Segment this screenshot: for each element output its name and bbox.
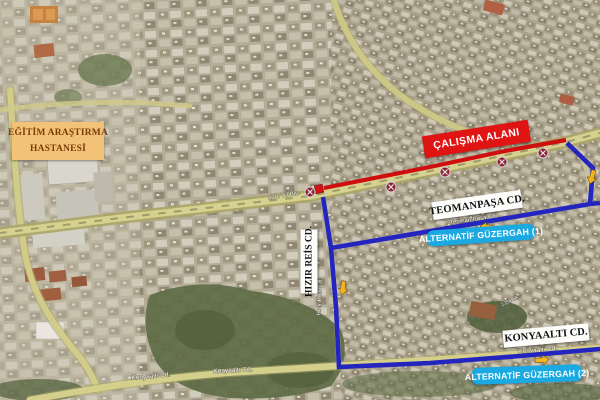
satellite-map: 100. Yıl Blv. Teoman Paşa Cd Hızır Reis … [0, 0, 600, 400]
no-stopping-sign-icon [305, 187, 315, 197]
no-stopping-sign-icon [497, 157, 507, 167]
no-stopping-sign-icon [440, 167, 450, 177]
no-stopping-sign-icon [538, 148, 548, 158]
no-stopping-sign-icon [386, 182, 396, 192]
closure-start-marker [314, 184, 323, 193]
city-texture-east [330, 0, 600, 400]
map-canvas: 100. Yıl Blv. Teoman Paşa Cd Hızır Reis … [0, 0, 600, 400]
